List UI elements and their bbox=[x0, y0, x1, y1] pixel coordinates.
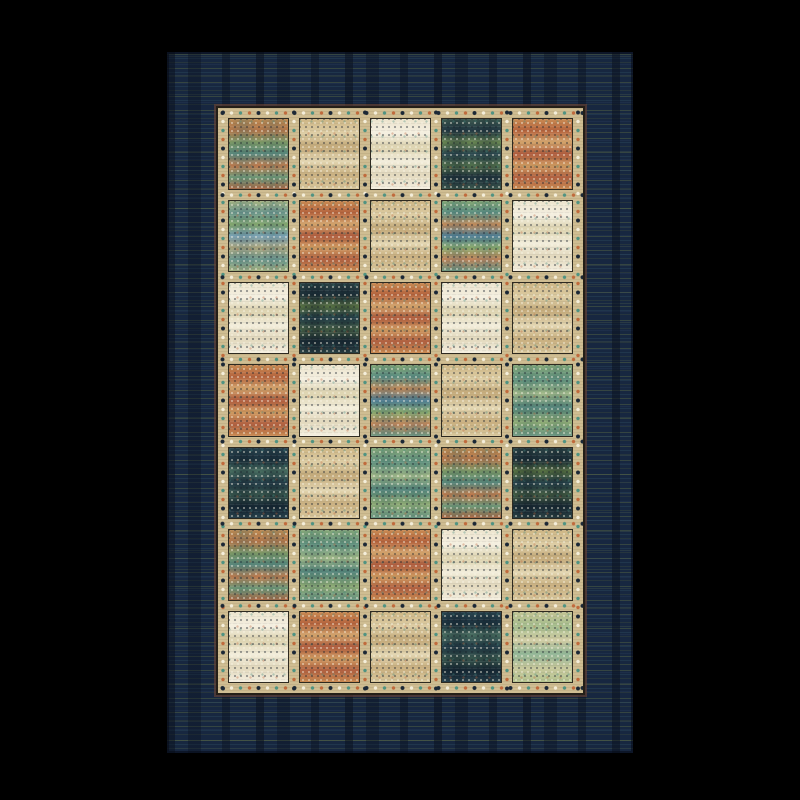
rug-patch-r7c1-cream bbox=[228, 611, 289, 683]
rug-patch-r2c4-teal-multi bbox=[441, 200, 502, 272]
rug-patch-r5c2-tan bbox=[299, 447, 360, 519]
rug-patch-r3c1-cream bbox=[228, 282, 289, 354]
photo-background bbox=[0, 0, 800, 800]
rug-patch-r7c3-tan bbox=[370, 611, 431, 683]
rug-patch-r2c3-tan bbox=[370, 200, 431, 272]
rug-patch-r1c4-teal-dark bbox=[441, 118, 502, 190]
area-rug bbox=[167, 52, 633, 753]
rug-patch-r4c1-orange bbox=[228, 364, 289, 436]
rug-patch-r7c4-navy-teal bbox=[441, 611, 502, 683]
rug-patch-r1c1-orange-multi bbox=[228, 118, 289, 190]
rug-patch-r7c2-orange bbox=[299, 611, 360, 683]
rug-patch-r5c5-navy-dark bbox=[512, 447, 573, 519]
rug-patch-r1c5-orange bbox=[512, 118, 573, 190]
rug-patch-r3c3-orange bbox=[370, 282, 431, 354]
patchwork-grid bbox=[218, 108, 583, 693]
rug-patch-r6c4-cream bbox=[441, 529, 502, 601]
rug-patch-r6c5-tan bbox=[512, 529, 573, 601]
rug-patch-r1c3-cream bbox=[370, 118, 431, 190]
rug-patch-r7c5-green-light bbox=[512, 611, 573, 683]
rug-patch-r6c1-orange-multi bbox=[228, 529, 289, 601]
rug-patch-r5c1-navy-teal bbox=[228, 447, 289, 519]
rug-patch-r3c2-navy-dark bbox=[299, 282, 360, 354]
rug-patch-r4c2-cream bbox=[299, 364, 360, 436]
rug-patch-r4c3-teal-multi bbox=[370, 364, 431, 436]
rug-patch-r2c2-orange bbox=[299, 200, 360, 272]
rug-patch-r6c2-teal-green bbox=[299, 529, 360, 601]
rug-patch-r6c3-orange bbox=[370, 529, 431, 601]
rug-patch-r2c5-cream bbox=[512, 200, 573, 272]
rug-patch-r4c5-teal-green bbox=[512, 364, 573, 436]
rug-patch-r4c4-tan bbox=[441, 364, 502, 436]
rug-patch-r5c4-orange-multi bbox=[441, 447, 502, 519]
rug-patch-r5c3-teal-green bbox=[370, 447, 431, 519]
rug-patch-r3c4-cream bbox=[441, 282, 502, 354]
rug-patch-r1c2-tan bbox=[299, 118, 360, 190]
rug-patch-r3c5-tan bbox=[512, 282, 573, 354]
rug-patch-r2c1-teal-light bbox=[228, 200, 289, 272]
